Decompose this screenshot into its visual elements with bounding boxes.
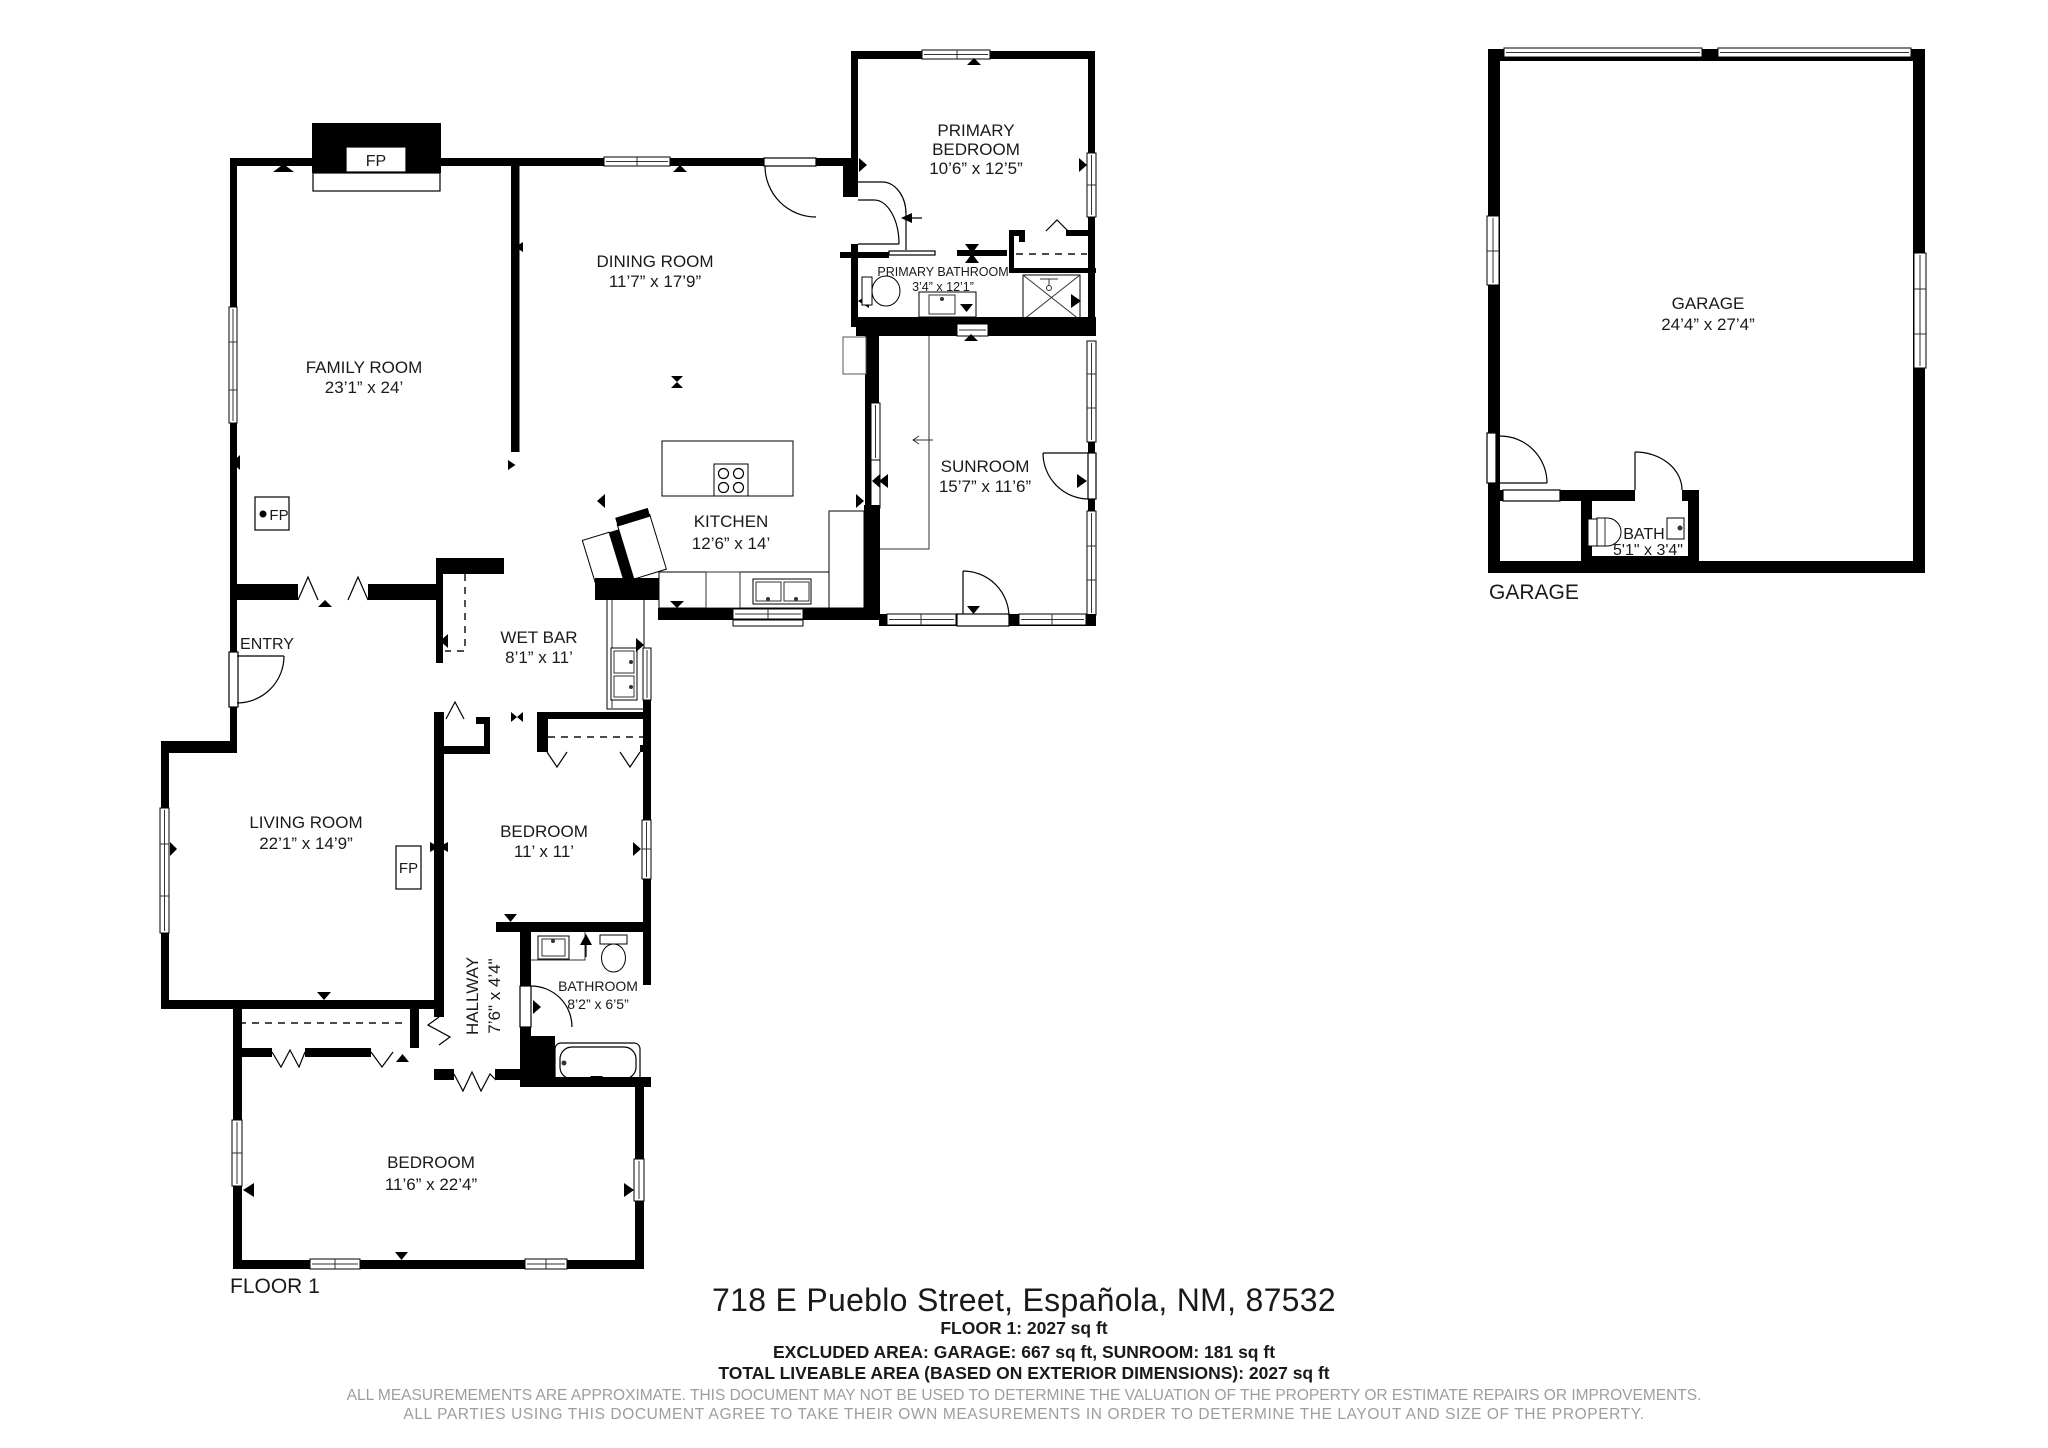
- svg-text:24’4” x 27’4”: 24’4” x 27’4”: [1661, 315, 1755, 334]
- svg-text:7’6" x 4’4": 7’6" x 4’4": [485, 958, 504, 1033]
- svg-text:BATHROOM: BATHROOM: [558, 978, 638, 994]
- svg-text:BEDROOM: BEDROOM: [500, 822, 588, 841]
- svg-text:8’1” x 11’: 8’1” x 11’: [505, 648, 573, 667]
- svg-text:3’4” x 12’1”: 3’4” x 12’1”: [912, 280, 974, 294]
- svg-text:FP: FP: [269, 507, 288, 524]
- svg-text:WET BAR: WET BAR: [500, 628, 577, 647]
- svg-text:ENTRY: ENTRY: [240, 636, 294, 653]
- svg-text:FLOOR 1: 2027 sq ft: FLOOR 1: 2027 sq ft: [940, 1318, 1107, 1338]
- svg-text:FLOOR 1: FLOOR 1: [230, 1275, 320, 1298]
- svg-text:8’2” x 6’5”: 8’2” x 6’5”: [567, 996, 629, 1012]
- svg-text:PRIMARY: PRIMARY: [937, 121, 1014, 140]
- svg-text:22’1” x 14’9”: 22’1” x 14’9”: [259, 834, 353, 853]
- svg-text:FAMILY ROOM: FAMILY ROOM: [306, 358, 423, 377]
- svg-text:BEDROOM: BEDROOM: [932, 140, 1020, 159]
- svg-text:PRIMARY BATHROOM: PRIMARY BATHROOM: [877, 265, 1008, 279]
- svg-text:23’1” x 24’: 23’1” x 24’: [325, 378, 403, 397]
- svg-text:FP: FP: [366, 153, 386, 170]
- svg-text:718 E Pueblo Street, Española,: 718 E Pueblo Street, Española, NM, 87532: [712, 1282, 1336, 1318]
- svg-text:11’7” x 17’9”: 11’7” x 17’9”: [609, 272, 702, 291]
- svg-text:ALL MEASUREMEMENTS ARE APPROXI: ALL MEASUREMEMENTS ARE APPROXIMATE. THIS…: [347, 1387, 1702, 1404]
- svg-text:TOTAL LIVEABLE AREA (BASED ON: TOTAL LIVEABLE AREA (BASED ON EXTERIOR D…: [718, 1363, 1329, 1383]
- svg-text:EXCLUDED AREA: GARAGE: 667 sq: EXCLUDED AREA: GARAGE: 667 sq ft, SUNROO…: [773, 1342, 1275, 1362]
- svg-text:LIVING ROOM: LIVING ROOM: [249, 813, 362, 832]
- svg-text:BEDROOM: BEDROOM: [387, 1153, 475, 1172]
- svg-text:BATH: BATH: [1623, 526, 1664, 543]
- svg-text:15’7” x 11’6”: 15’7” x 11’6”: [939, 477, 1032, 496]
- svg-text:10’6” x 12’5”: 10’6” x 12’5”: [929, 159, 1023, 178]
- svg-text:FP: FP: [399, 860, 418, 877]
- svg-text:SUNROOM: SUNROOM: [941, 457, 1030, 476]
- svg-text:HALLWAY: HALLWAY: [463, 957, 482, 1035]
- svg-text:5'1" x 3'4": 5'1" x 3'4": [1613, 542, 1683, 559]
- svg-text:12’6” x 14’: 12’6” x 14’: [692, 534, 770, 553]
- svg-text:GARAGE: GARAGE: [1489, 581, 1579, 604]
- svg-text:ALL PARTIES USING THIS DOCUMEN: ALL PARTIES USING THIS DOCUMENT AGREE TO…: [403, 1406, 1644, 1423]
- svg-text:KITCHEN: KITCHEN: [694, 512, 769, 531]
- svg-text:DINING ROOM: DINING ROOM: [596, 252, 713, 271]
- svg-text:11’6” x 22’4”: 11’6” x 22’4”: [385, 1175, 478, 1194]
- svg-text:11’ x 11’: 11’ x 11’: [514, 842, 574, 861]
- svg-text:GARAGE: GARAGE: [1672, 294, 1745, 313]
